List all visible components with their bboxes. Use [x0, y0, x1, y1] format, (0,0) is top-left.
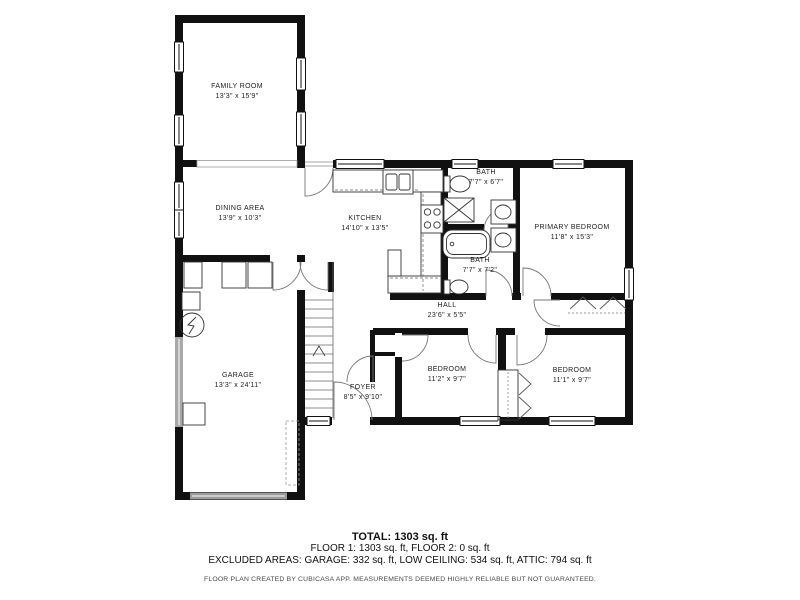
open-passage [197, 161, 297, 168]
stairs [286, 262, 333, 485]
room-name: HALL [428, 301, 467, 311]
toilet-icon [444, 176, 470, 192]
room-label-bath-bottom: BATH 7'7" x 7'2" [463, 256, 497, 276]
door-arc [523, 268, 551, 296]
appliance-icon [182, 262, 272, 425]
window [553, 160, 584, 169]
room-label-bedroom-left: BEDROOM 11'2" x 9'7" [428, 365, 467, 385]
door-arc [305, 168, 333, 196]
room-name: PRIMARY BEDROOM [534, 223, 609, 233]
stairs-direction-arrow [313, 346, 325, 356]
room-dimensions: 7'7" x 7'2" [463, 266, 497, 276]
closet-rod-zigzag [519, 373, 531, 419]
excluded-areas-text: EXCLUDED AREAS: GARAGE: 332 sq. ft, LOW … [0, 555, 800, 567]
room-dimensions: 13'9" x 10'3" [216, 214, 265, 224]
toilet-icon [444, 280, 468, 294]
room-label-dining-area: DINING AREA 13'9" x 10'3" [216, 204, 265, 224]
garage-side-door [175, 337, 183, 427]
bathtub-icon [443, 230, 490, 258]
room-dimensions: 14'10" x 13'5" [341, 224, 388, 234]
garage-door [190, 493, 287, 500]
room-name: FAMILY ROOM [211, 82, 263, 92]
room-dimensions: 13'3" x 24'11" [215, 381, 262, 391]
summary-footer: TOTAL: 1303 sq. ft FLOOR 1: 1303 sq. ft,… [0, 531, 800, 583]
room-dimensions: 13'3" x 15'9" [211, 92, 263, 102]
bedroom-closet [498, 370, 531, 420]
total-area-text: TOTAL: 1303 sq. ft [0, 531, 800, 543]
room-name: BATH [469, 168, 503, 178]
window [175, 115, 184, 146]
bathroom-sink-icon [491, 228, 516, 252]
room-name: FOYER [344, 383, 383, 393]
window [175, 182, 184, 210]
room-dimensions: 8'5" x 9'10" [344, 393, 383, 403]
window [452, 160, 478, 169]
window [307, 417, 330, 426]
room-name: DINING AREA [216, 204, 265, 214]
window [460, 417, 500, 426]
window [549, 417, 595, 426]
door-arc [273, 262, 301, 290]
door-arc [347, 356, 373, 382]
room-label-primary-bedroom: PRIMARY BEDROOM 11'8" x 15'3" [534, 223, 609, 243]
window [297, 58, 306, 90]
room-name: KITCHEN [341, 214, 388, 224]
room-label-kitchen: KITCHEN 14'10" x 13'5" [341, 214, 388, 234]
window [175, 42, 184, 72]
room-name: BEDROOM [428, 365, 467, 375]
room-name: BEDROOM [553, 366, 592, 376]
disclaimer-text: FLOOR PLAN CREATED BY CUBICASA APP. MEAS… [0, 576, 800, 583]
door-arc [468, 335, 496, 363]
stove-icon [421, 205, 443, 233]
window [175, 210, 184, 238]
room-label-hall: HALL 23'6" x 5'5" [428, 301, 467, 321]
room-dimensions: 7'7" x 6'7" [469, 178, 503, 188]
room-dimensions: 11'1" x 9'7" [553, 376, 592, 386]
room-label-bath-top: BATH 7'7" x 6'7" [469, 168, 503, 188]
room-label-foyer: FOYER 8'5" x 9'10" [344, 383, 383, 403]
door-arc [517, 335, 547, 365]
room-dimensions: 11'8" x 15'3" [534, 233, 609, 243]
room-label-garage: GARAGE 13'3" x 24'11" [215, 371, 262, 391]
shower-icon [444, 198, 474, 222]
room-label-bedroom-right: BEDROOM 11'1" x 9'7" [553, 366, 592, 386]
kitchen-sink-icon [383, 170, 413, 194]
floor-plan-drawing [0, 0, 800, 600]
window [336, 160, 384, 169]
room-label-family-room: FAMILY ROOM 13'3" x 15'9" [211, 82, 263, 102]
room-name: GARAGE [215, 371, 262, 381]
room-dimensions: 11'2" x 9'7" [428, 375, 467, 385]
door-arc [402, 335, 428, 361]
bathroom-sink-icon [491, 200, 516, 224]
room-dimensions: 23'6" x 5'5" [428, 311, 467, 321]
electrical-panel-icon [180, 313, 204, 337]
window [625, 268, 634, 300]
floor-plan-page: FAMILY ROOM 13'3" x 15'9" DINING AREA 13… [0, 0, 800, 600]
window [297, 112, 306, 146]
floor-areas-text: FLOOR 1: 1303 sq. ft, FLOOR 2: 0 sq. ft [0, 543, 800, 555]
room-name: BATH [463, 256, 497, 266]
door-arc [534, 300, 560, 326]
